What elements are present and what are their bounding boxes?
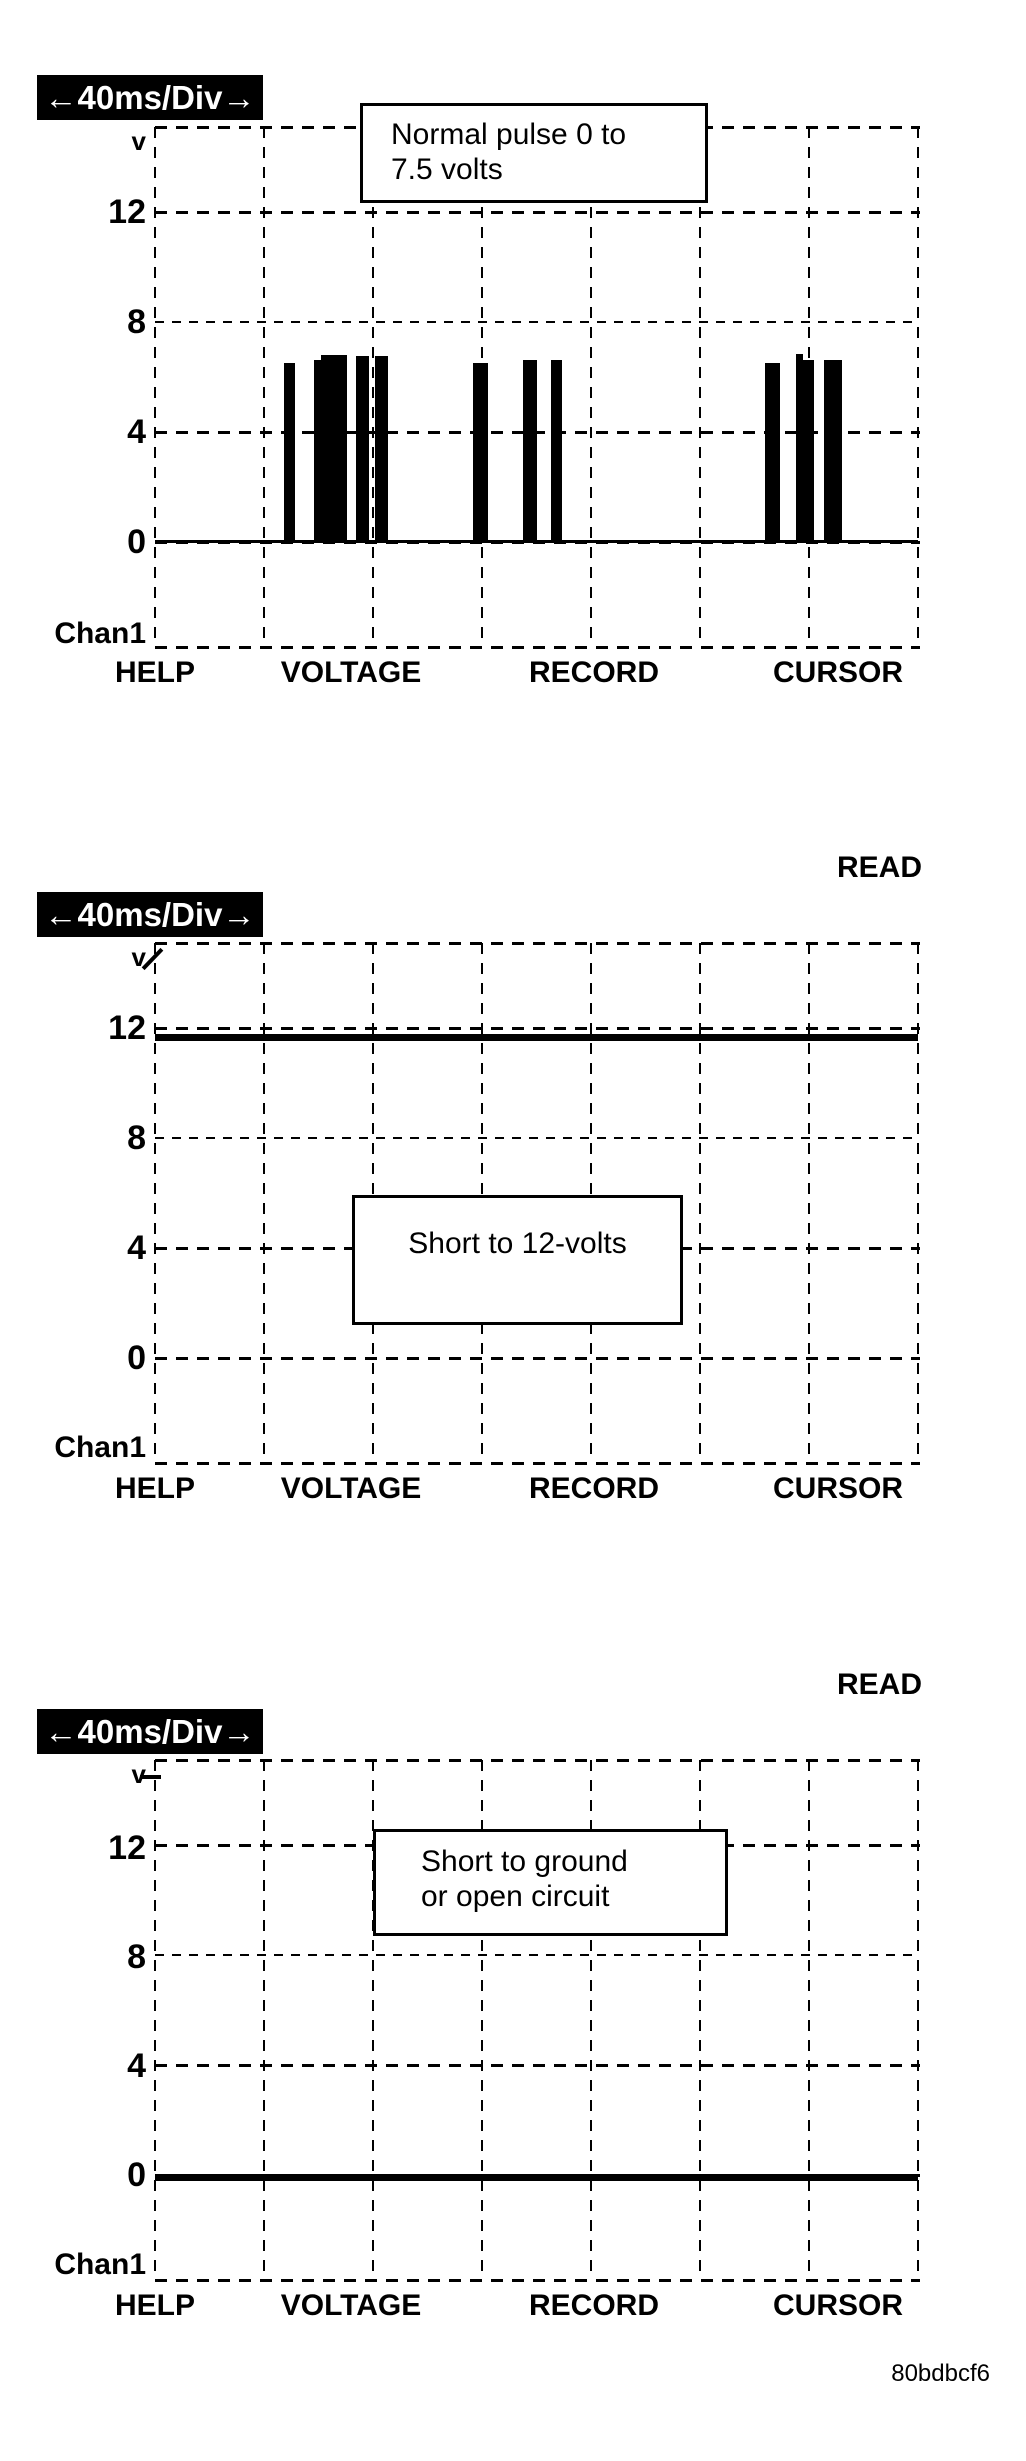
timebase-label: ←40ms/Div→ (45, 1713, 256, 1751)
trace-0v-flatline (155, 2174, 918, 2181)
annotation-box-short-12v: Short to 12-volts (352, 1195, 683, 1325)
softkey-record: RECORD (529, 2291, 659, 2321)
annotation-box-normal-pulse: Normal pulse 0 to 7.5 volts (360, 103, 708, 203)
read-status: READ (837, 852, 922, 884)
y-tick-4: 4 (0, 415, 146, 449)
gridline-h (155, 2279, 920, 2282)
softkey-cursor: CURSOR (773, 658, 903, 688)
pulse-bar (551, 360, 562, 542)
gridline-v (263, 943, 265, 1463)
gridline-h (155, 1462, 920, 1465)
gridline-v (699, 943, 701, 1463)
pulse-bar (765, 363, 780, 542)
annotation-line: Short to 12-volts (355, 1226, 680, 1261)
y-tick-4: 4 (0, 2049, 146, 2083)
y-unit-label: v (0, 128, 146, 154)
softkey-help: HELP (115, 2291, 195, 2321)
timebase-label: ←40ms/Div→ (45, 896, 256, 934)
y-tick-0: 0 (0, 1341, 146, 1375)
gridline-v (917, 1760, 919, 2280)
y-tick-8: 8 (0, 1940, 146, 1974)
y-tick-4: 4 (0, 1231, 146, 1265)
gridline-h (155, 942, 920, 945)
softkey-voltage: VOLTAGE (281, 1474, 422, 1504)
gridline-v (808, 1760, 810, 2280)
gridline-h (155, 1027, 920, 1030)
y-tick-12: 12 (0, 1831, 146, 1865)
pulse-bar (284, 363, 295, 542)
pulse-bar (796, 354, 803, 542)
y-unit-label: v (0, 1761, 146, 1787)
annotation-box-short-ground: Short to ground or open circuit (373, 1829, 728, 1936)
channel-label: Chan1 (0, 1433, 146, 1463)
softkey-voltage: VOLTAGE (281, 658, 422, 688)
softkey-record: RECORD (529, 658, 659, 688)
gridline-v (917, 943, 919, 1463)
gridline-h (155, 1759, 920, 1762)
softkey-cursor: CURSOR (773, 1474, 903, 1504)
figure-code: 80bdbcf6 (891, 2360, 990, 2388)
softkey-record: RECORD (529, 1474, 659, 1504)
manual-figure-page: ←40ms/Div→ v 12 8 4 0 Chan1 Normal pulse… (0, 0, 1026, 2461)
y-tick-8: 8 (0, 305, 146, 339)
gridline-h (155, 1357, 920, 1360)
channel-label: Chan1 (0, 2250, 146, 2280)
pulse-bar (321, 355, 347, 542)
softkey-voltage: VOLTAGE (281, 2291, 422, 2321)
gridline-h (155, 2064, 920, 2067)
y-tick-0: 0 (0, 525, 146, 559)
y-unit-label: v (0, 944, 146, 970)
timebase-badge: ←40ms/Div→ (37, 892, 263, 937)
trace-start-dash-icon (140, 1775, 161, 1779)
softkey-cursor: CURSOR (773, 2291, 903, 2321)
timebase-label: ←40ms/Div→ (45, 79, 256, 117)
pulse-bar (473, 363, 488, 542)
annotation-line: Short to ground (421, 1844, 725, 1879)
y-tick-12: 12 (0, 1011, 146, 1045)
annotation-line: 7.5 volts (391, 152, 705, 187)
gridline-h (155, 1954, 920, 1956)
gridline-v (154, 943, 156, 1463)
annotation-line: or open circuit (421, 1879, 725, 1914)
gridline-v (808, 943, 810, 1463)
softkey-help: HELP (115, 658, 195, 688)
pulse-bar (356, 356, 369, 542)
pulse-bar (314, 360, 321, 542)
gridline-v (154, 1760, 156, 2280)
timebase-badge: ←40ms/Div→ (37, 1709, 263, 1754)
trace-12v-flatline (155, 1034, 918, 1041)
read-status: READ (837, 1669, 922, 1701)
y-tick-0: 0 (0, 2158, 146, 2192)
annotation-line: Normal pulse 0 to (391, 117, 705, 152)
gridline-v (263, 1760, 265, 2280)
pulse-train (155, 127, 918, 647)
y-tick-8: 8 (0, 1121, 146, 1155)
pulse-bar (375, 356, 388, 542)
pulse-bar (523, 360, 537, 542)
gridline-h (155, 1137, 920, 1139)
timebase-badge: ←40ms/Div→ (37, 75, 263, 120)
y-tick-12: 12 (0, 195, 146, 229)
channel-label: Chan1 (0, 619, 146, 649)
pulse-bar (803, 360, 814, 542)
softkey-help: HELP (115, 1474, 195, 1504)
pulse-bar (824, 360, 842, 542)
